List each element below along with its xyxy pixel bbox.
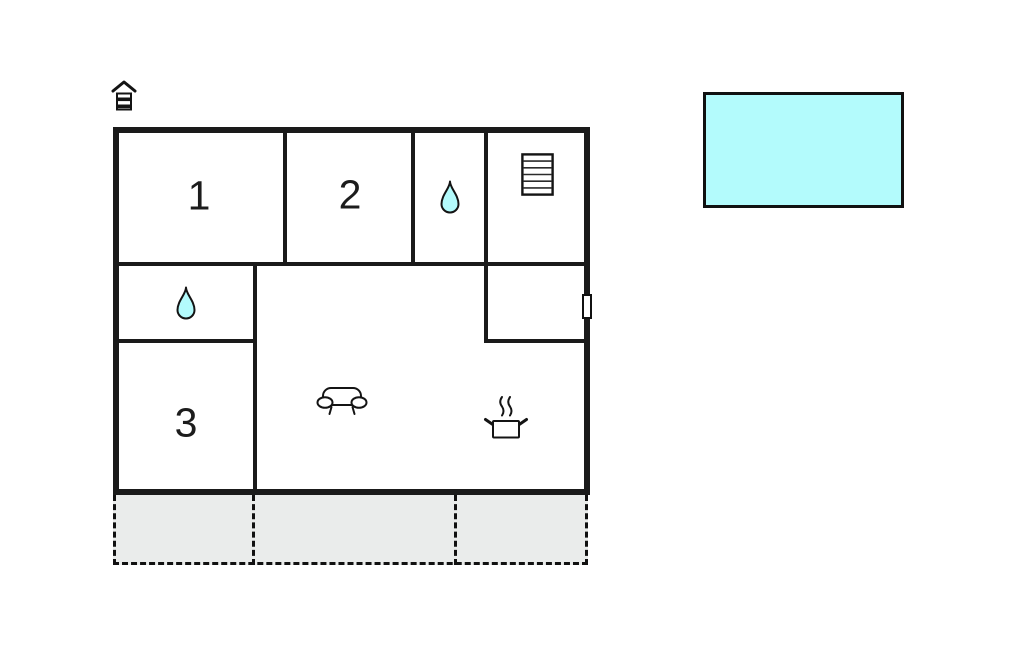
cooking-pot-icon <box>483 394 529 444</box>
wall-room1-room2 <box>283 133 287 266</box>
room-label-1: 1 <box>188 176 211 217</box>
terrace <box>113 495 588 565</box>
door-marker <box>582 294 592 319</box>
floorplan-canvas: 1 2 3 <box>0 0 1024 652</box>
terrace-divider <box>252 495 255 565</box>
room-label-2: 2 <box>339 175 362 216</box>
water-drop-icon <box>176 286 196 321</box>
water-drop-icon <box>440 180 460 215</box>
wall-room2-bath <box>411 133 415 266</box>
wall-bath-stairs <box>484 133 488 343</box>
house-icon <box>110 80 138 111</box>
terrace-divider <box>454 495 457 565</box>
stairs-icon <box>521 153 554 196</box>
wall-small-room-bottom <box>484 339 584 343</box>
pool <box>703 92 904 208</box>
room-label-3: 3 <box>175 403 198 444</box>
wall-divider-horizontal-upper <box>119 262 584 266</box>
wall-bath-room3 <box>119 339 257 343</box>
sofa-icon <box>316 385 368 420</box>
wall-left-column <box>253 262 257 489</box>
